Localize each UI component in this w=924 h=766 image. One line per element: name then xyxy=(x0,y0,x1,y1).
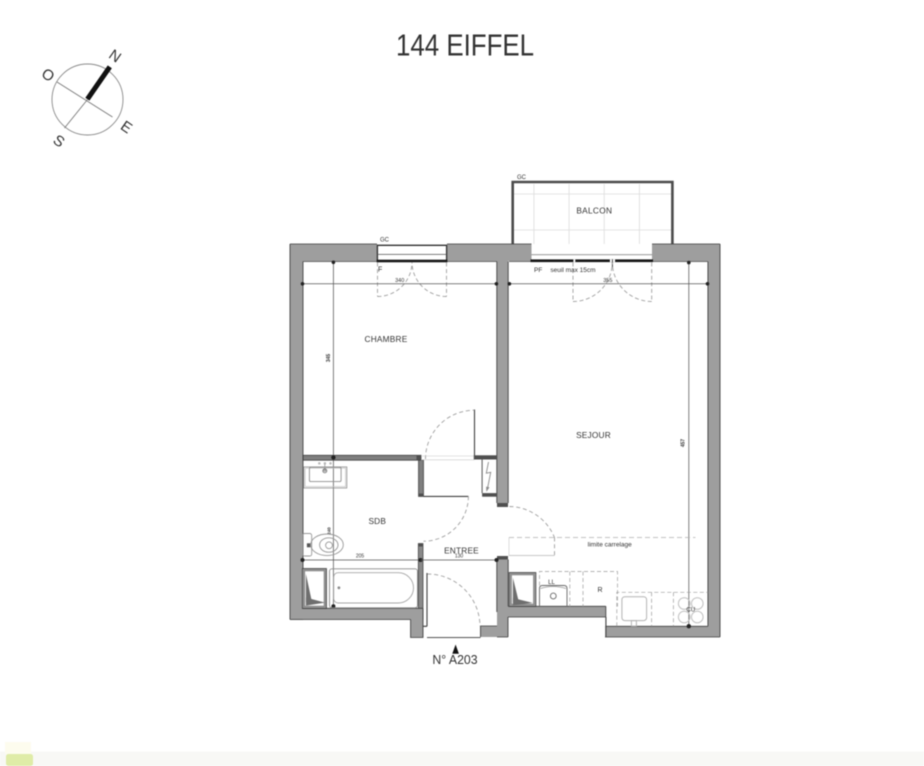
svg-text:345: 345 xyxy=(326,354,332,363)
svg-text:N° A203: N° A203 xyxy=(432,652,477,667)
svg-text:N: N xyxy=(105,46,124,66)
svg-text:SEJOUR: SEJOUR xyxy=(576,430,611,440)
svg-text:355: 355 xyxy=(603,278,612,284)
svg-text:144 EIFFEL: 144 EIFFEL xyxy=(396,28,534,63)
svg-text:R: R xyxy=(597,587,602,594)
svg-text:457: 457 xyxy=(681,439,687,448)
svg-text:CU: CU xyxy=(686,606,695,613)
svg-text:S: S xyxy=(50,132,68,152)
svg-text:340: 340 xyxy=(395,278,404,284)
svg-text:SDB: SDB xyxy=(368,516,386,526)
svg-text:GC: GC xyxy=(380,237,390,243)
svg-text:PF: PF xyxy=(534,267,542,274)
svg-text:GC: GC xyxy=(517,175,527,181)
svg-text:130: 130 xyxy=(455,554,464,560)
svg-text:205: 205 xyxy=(356,554,365,560)
svg-text:E: E xyxy=(117,118,135,138)
svg-text:O: O xyxy=(38,65,57,86)
svg-text:BALCON: BALCON xyxy=(576,205,612,215)
svg-text:F: F xyxy=(378,267,382,274)
svg-text:CHAMBRE: CHAMBRE xyxy=(365,334,408,344)
svg-text:limite carrelage: limite carrelage xyxy=(588,542,632,549)
